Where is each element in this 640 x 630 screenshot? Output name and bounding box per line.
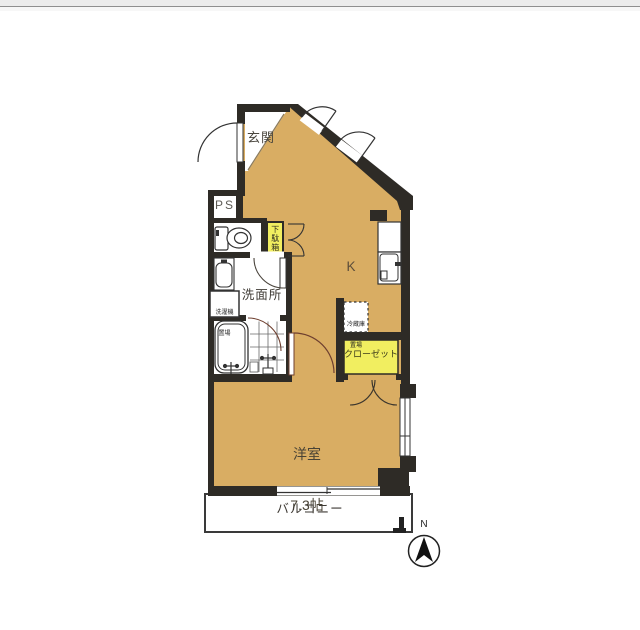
laundry-space-label-line2: 置場 (210, 331, 239, 338)
laundry-space-label-line1: 洗濯機 (210, 310, 239, 317)
kitchen-sink-fixture (378, 222, 401, 284)
compass-north-label: N (416, 519, 432, 530)
entrance-label: 玄関 (247, 131, 275, 145)
vanity-fixture (214, 258, 234, 290)
laundry-space-label: 洗濯機 置場 (210, 296, 239, 352)
floor-plan-page: 玄関 PS 下駄箱 洗面所 洗濯機 置場 K 冷蔵庫 置場 クローゼット 洋室 … (0, 0, 640, 630)
western-room-label-line1: 洋室 (267, 446, 347, 463)
balcony-label: バルコニー (255, 503, 365, 517)
refrigerator-space-label-line1: 冷蔵庫 (344, 322, 368, 329)
western-room-label: 洋室 7.3帖 (267, 412, 347, 548)
closet-label: クローゼット (344, 350, 398, 360)
entrance-door (198, 123, 243, 162)
washroom-label: 洗面所 (236, 289, 288, 303)
shoe-cabinet-label: 下駄箱 (270, 225, 279, 257)
toilet-fixture (215, 227, 251, 250)
compass-icon (409, 536, 440, 567)
pipe-space-label: PS (212, 199, 238, 212)
room-window (400, 398, 410, 456)
kitchen-label: K (343, 260, 359, 275)
